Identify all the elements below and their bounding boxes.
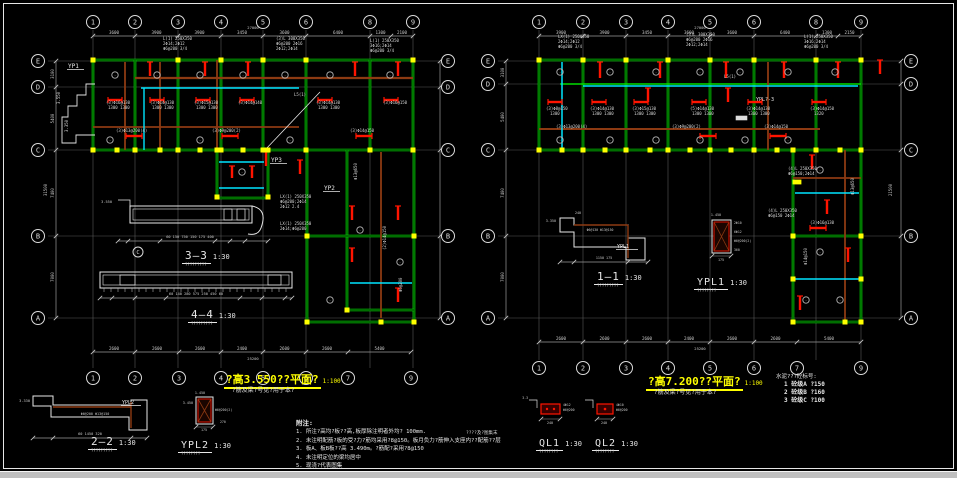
notch xyxy=(120,275,135,285)
column-marker xyxy=(411,58,416,63)
column-marker xyxy=(266,148,271,153)
grid-axis-number: 3 xyxy=(624,19,628,27)
callout-text: Φ14@150 xyxy=(803,248,808,265)
grid-axis-number: 4 xyxy=(219,375,223,383)
rebar-note: 2Φ10 xyxy=(734,221,742,225)
dim-value: 1150 175 xyxy=(596,256,612,260)
section-sub: ????????? xyxy=(182,263,230,267)
element-tag-dot: · xyxy=(839,298,841,302)
grid-axis-number: 9 xyxy=(409,375,413,383)
grid-axis-number: B xyxy=(446,233,450,241)
column-marker xyxy=(560,148,565,153)
dim-value: 7400 xyxy=(500,188,505,198)
column-marker xyxy=(624,148,629,153)
column-marker xyxy=(581,58,586,63)
section-3-3-inner xyxy=(133,209,249,220)
ql1-bar xyxy=(546,408,548,410)
section-3-3-hook xyxy=(248,206,263,234)
column-marker xyxy=(688,148,693,153)
column-marker xyxy=(648,148,653,153)
grid-axis-number: 2 xyxy=(581,365,585,373)
element-tag-dot: · xyxy=(655,70,657,74)
callout-text: 3.350 xyxy=(64,119,69,132)
grid-axis-number: D xyxy=(446,84,450,92)
column-marker xyxy=(215,148,220,153)
callout-text: (3)Φ14@150 xyxy=(350,128,375,133)
level-mark: 3.350 xyxy=(546,219,556,223)
dim-value: 7000 xyxy=(50,272,55,282)
column-marker xyxy=(752,58,757,63)
element-tag-dot: · xyxy=(559,138,561,142)
dim-value: 5400 xyxy=(50,113,55,123)
grid-axis-number: 9 xyxy=(411,19,415,27)
right-plan-group: 1234568912345679EEDDCCBBAA39003900345036… xyxy=(482,16,918,375)
rebar-note: 4Φ12 xyxy=(563,403,571,407)
callout-text: 1300 1300 xyxy=(692,111,714,116)
grid-axis-number: 5 xyxy=(708,19,712,27)
dim-value: 2100 xyxy=(397,30,408,35)
callout-text: Φ13@650 xyxy=(850,178,855,195)
element-tag-dot: · xyxy=(199,138,201,142)
element-tag-dot: · xyxy=(389,73,391,77)
plan-drawing-svg: 1234568912345679EEDDCCBBAA36003900390034… xyxy=(0,0,957,478)
callout-text: Φ6@200 xyxy=(398,277,403,292)
grid-axis-number: C xyxy=(136,250,139,256)
section-sub: ????????? xyxy=(594,284,642,288)
callout-text: 2Φ12;2Φ14 xyxy=(686,42,708,47)
element-tag-dot: · xyxy=(744,138,746,142)
section-scale: 1:30 xyxy=(625,274,642,282)
callout-text: (3)Φ9@200(2) xyxy=(212,128,241,133)
left-plan-title-scale: 1:100 xyxy=(323,378,341,385)
column-marker xyxy=(305,234,310,239)
rebar-note: Φ6@200(2) xyxy=(215,408,232,412)
note-line: 4. 未注明定位的梁均居中 xyxy=(296,454,501,463)
column-marker xyxy=(791,277,796,282)
callout-text: L5(1) xyxy=(724,74,736,79)
cad-drawing-window: 1234568912345679EEDDCCBBAA36003900390034… xyxy=(0,0,957,478)
column-marker xyxy=(176,58,181,63)
dim-value: 60 150 750 150 175 400 xyxy=(166,235,214,239)
level-mark: 3.330 xyxy=(19,399,30,403)
element-tag-dot: · xyxy=(609,70,611,74)
dim-value: 2600 xyxy=(152,346,163,351)
element-tag-dot: · xyxy=(787,138,789,142)
column-marker xyxy=(304,148,309,153)
grid-axis-number: 7 xyxy=(795,365,799,373)
column-marker xyxy=(838,148,843,153)
ql-side-note: ????及?图集末 xyxy=(466,430,498,436)
column-marker xyxy=(814,58,819,63)
section-label-ql1: QL11:30 ???????? xyxy=(536,433,582,454)
dim-value: 3600 xyxy=(279,30,290,35)
dim-overall: 31500 xyxy=(43,183,48,196)
column-marker xyxy=(91,148,96,153)
dim-value: 5400 xyxy=(374,346,385,351)
element-tag-dot: · xyxy=(834,70,836,74)
section-4-4-inner xyxy=(103,275,289,285)
notch xyxy=(224,209,232,220)
element-tag-dot: · xyxy=(156,73,158,77)
callout-text: L5(1) xyxy=(294,92,306,97)
stair-detail xyxy=(62,84,95,143)
dim-value: 6400 xyxy=(780,30,791,35)
section-sub: ????????? xyxy=(88,449,136,453)
grid-axis-number: B xyxy=(909,233,913,241)
column-marker xyxy=(729,148,734,153)
note-line: 3. 板A、板B板??高 3.490m。?筋配?采用?8@150 xyxy=(296,445,501,454)
dim-overall: 21500 xyxy=(888,183,893,196)
section-scale: 1:30 xyxy=(621,440,638,448)
left-plan-subtitle: ?筋及梁?号见?用于本? xyxy=(224,388,341,394)
dim-value: 6400 xyxy=(333,30,344,35)
callout-text: Φ6@200 3/4 xyxy=(804,44,829,49)
rebar-note: 360 xyxy=(734,248,740,252)
callout-text: 2Φ14;Φ6@200 xyxy=(280,226,307,231)
element-tag-dot: · xyxy=(819,168,821,172)
grid-axis-number: 3 xyxy=(177,375,181,383)
dim-value: 2400 xyxy=(237,346,248,351)
grid-axis-number: 2 xyxy=(133,19,137,27)
grid-axis-number: 8 xyxy=(368,19,372,27)
notes-block: 附注: 1. 所注?高均?板??高,板厚除注明者外均? 100mm. 2. 未注… xyxy=(296,418,501,471)
dim-value: 2600 xyxy=(556,336,567,341)
dim-value: 3900 xyxy=(194,30,205,35)
column-marker xyxy=(412,234,417,239)
callout-text: Φ6@200 3/4 xyxy=(370,48,395,53)
section-label-ypl1: YPL11:30 ???????? xyxy=(694,272,747,293)
element-tag-dot: · xyxy=(289,138,291,142)
grid-axis-number: 1 xyxy=(537,19,541,27)
column-marker xyxy=(241,148,246,153)
grid-axis-number: 6 xyxy=(752,19,756,27)
rebar-note: 6Φ12 xyxy=(734,230,742,234)
element-tag-dot: · xyxy=(329,73,331,77)
plan-label: YP3 xyxy=(271,157,282,164)
section-3-3-outline xyxy=(130,206,252,223)
left-plan-group: 1234568912345679EEDDCCBBAA36003900390034… xyxy=(32,16,455,385)
dim-value: 2400 xyxy=(684,336,695,341)
dim-value: 2600 xyxy=(642,336,653,341)
dim-value: 175 xyxy=(718,258,724,262)
column-marker xyxy=(305,320,310,325)
dim-overall: 25200 xyxy=(694,346,706,351)
rebar-note: Φ6@200 xyxy=(563,408,575,412)
dim-value: 3100 xyxy=(500,67,505,77)
section-scale: 1:30 xyxy=(119,439,136,447)
element-tag-dot: · xyxy=(609,138,611,142)
element-tag-dot: · xyxy=(699,70,701,74)
dim-value: 3900 xyxy=(151,30,162,35)
callout-text: Φ6@150 2Φ14 xyxy=(768,213,795,218)
grid-axis-number: E xyxy=(486,58,490,66)
callout-text: (3)Φ14@150 xyxy=(764,124,789,129)
dim-value: 2600 xyxy=(727,336,738,341)
element-tag-dot: · xyxy=(329,298,331,302)
notch xyxy=(237,209,245,220)
dim-value: 270 xyxy=(220,420,226,424)
dim-overall: 27000 xyxy=(694,25,706,30)
grid-axis-number: B xyxy=(486,233,490,241)
rebar-note: Φ6@130 Φ13@150 xyxy=(587,228,614,232)
plan-label: YP1 xyxy=(68,63,79,70)
grid-axis-number: C xyxy=(486,147,490,155)
grid-axis-number: E xyxy=(36,58,40,66)
column-marker xyxy=(537,148,542,153)
callout-text: 2Φ12;2Φ14 xyxy=(276,46,298,51)
section-label-2-2: 2—21:30 ????????? xyxy=(88,432,136,453)
left-plan-title: ?高3.550??平面?1:100 ?筋及梁?号见?用于本? xyxy=(224,370,341,394)
grid-axis-number: 6 xyxy=(304,19,308,27)
column-marker xyxy=(215,195,220,200)
dim-value: 1.450 xyxy=(711,213,721,217)
grid-axis-number: 4 xyxy=(666,19,670,27)
element-tag-dot: · xyxy=(819,250,821,254)
column-marker xyxy=(261,58,266,63)
rebar-note: Φ6@200 Φ13@150 xyxy=(81,412,110,416)
column-marker xyxy=(198,148,203,153)
grid-axis-number: D xyxy=(36,84,40,92)
ql1-body xyxy=(541,404,560,414)
callout-text: (2)Φ14@150 xyxy=(382,225,387,250)
grid-axis-number: A xyxy=(36,315,41,323)
element-tag-dot: · xyxy=(359,228,361,232)
grid-axis-number: 1 xyxy=(91,19,95,27)
callout-text: 1300 1300 xyxy=(592,111,614,116)
column-marker xyxy=(115,148,120,153)
dim-value: 3450 xyxy=(642,30,653,35)
section-sub: ????????? xyxy=(188,322,236,326)
column-marker xyxy=(859,277,864,282)
grid-axis-number: C xyxy=(36,147,40,155)
note-line: 2. 未注明配筋?板的受?力?筋均采用?8@150。板月负力?筋伸入支座内??配… xyxy=(296,437,501,446)
dim-value: 240 xyxy=(575,211,581,215)
inner-label: YPL1 xyxy=(617,244,629,250)
column-marker xyxy=(791,320,796,325)
grid-axis-number: A xyxy=(486,315,491,323)
column-marker xyxy=(775,148,780,153)
dim-value: 2600 xyxy=(599,336,610,341)
element-tag-dot: · xyxy=(114,73,116,77)
level-mark: 3.550 xyxy=(101,200,112,204)
right-plan-title: ?高7.200??平面?1:100 ?筋及梁?号见?用于本? xyxy=(646,372,763,396)
grid-axis-number: 3 xyxy=(624,365,628,373)
column-marker xyxy=(537,58,542,63)
element-tag-dot: · xyxy=(739,70,741,74)
element-tag-dot: · xyxy=(559,70,561,74)
right-plan-subtitle: ?筋及梁?号见?用于本? xyxy=(646,390,763,396)
ql2-step xyxy=(585,400,593,408)
ql2-bar xyxy=(604,408,607,411)
section-scale: 1:30 xyxy=(730,279,747,287)
callout-text: (3)Φ9@200(2) xyxy=(672,124,701,129)
element-tag-dot: · xyxy=(109,138,111,142)
grid-axis-number: 1 xyxy=(537,365,541,373)
grid-axis-number: D xyxy=(909,81,913,89)
inner-label: YPL2 xyxy=(122,400,134,406)
level-mark: 3.450 xyxy=(183,401,193,405)
grid-axis-number: A xyxy=(446,315,451,323)
dim-value: 2600 xyxy=(322,346,333,351)
dim-value: 2600 xyxy=(279,346,290,351)
section-label-4-4: 4—41:30 ????????? xyxy=(188,305,236,326)
callout-text: 1300 1300 xyxy=(152,105,174,110)
dim-value: 7400 xyxy=(50,188,55,198)
section-scale: 1:30 xyxy=(565,440,582,448)
dim-overall: 25200 xyxy=(247,356,259,361)
column-marker xyxy=(843,320,848,325)
section-scale: 1:30 xyxy=(214,442,231,450)
grid-axis-number: D xyxy=(486,81,490,89)
element-tag-dot: · xyxy=(242,73,244,77)
section-label-ypl2: YPL21:30 ???????? xyxy=(178,435,231,456)
legend-line: 3 砼级C ?100 xyxy=(776,397,825,405)
dim-value: 3100 xyxy=(50,69,55,79)
column-marker xyxy=(368,148,373,153)
column-marker xyxy=(91,58,96,63)
dim-value: 7000 xyxy=(500,272,505,282)
callout-text: 1300 1300 xyxy=(196,105,218,110)
column-marker xyxy=(304,58,309,63)
callout-text: Φ13@650 xyxy=(353,163,358,180)
callout-text: 3.550 xyxy=(56,91,61,104)
grid-axis-number: 4 xyxy=(219,19,223,27)
column-marker xyxy=(708,58,713,63)
column-marker xyxy=(859,234,864,239)
column-marker xyxy=(624,58,629,63)
element-tag-dot: · xyxy=(655,138,657,142)
column-marker xyxy=(345,308,350,313)
column-marker xyxy=(859,58,864,63)
concrete-grade-legend: 水泥???砼标号: 1 砼级A ?150 2 砼级B ?160 3 砼级C ?1… xyxy=(776,374,825,405)
grid-axis-number: 3 xyxy=(176,19,180,27)
dim-value: 3600 xyxy=(109,30,120,35)
column-marker xyxy=(176,148,181,153)
dim-value: 1300 xyxy=(375,30,386,35)
grid-axis-number: 9 xyxy=(859,19,863,27)
dim-value: 2150 xyxy=(844,30,855,35)
callout-text: 1300 1300 xyxy=(748,111,770,116)
section-label-ql2: QL21:30 ???????? xyxy=(592,433,638,454)
column-marker xyxy=(814,148,819,153)
column-marker xyxy=(411,148,416,153)
right-plan-title-scale: 1:100 xyxy=(745,380,763,387)
dim-value: 5400 xyxy=(500,112,505,122)
grid-axis-number: 2 xyxy=(133,375,137,383)
dim-value: 240 xyxy=(601,421,607,425)
section-label-3-3: 3—31:30 ????????? xyxy=(182,246,230,267)
column-marker xyxy=(859,320,864,325)
callout-text: 2Φ12 2.4 xyxy=(280,204,300,209)
plan-label: YP2 xyxy=(324,185,335,192)
element-tag-dot: · xyxy=(199,73,201,77)
grid-axis-number: 2 xyxy=(581,19,585,27)
column-marker xyxy=(752,148,757,153)
callout-text: Φ6@200 3/4 xyxy=(163,46,188,51)
grid-axis-number: 1 xyxy=(91,375,95,383)
dim-value: 2600 xyxy=(195,346,206,351)
tag-box xyxy=(736,116,747,120)
element-tag-dot: · xyxy=(787,70,789,74)
dim-value: 2600 xyxy=(770,336,781,341)
level-mark: 3.3 xyxy=(522,396,528,400)
callout-text: 1320 xyxy=(814,111,824,116)
grid-axis-number: 5 xyxy=(261,19,265,27)
dim-value: 3600 xyxy=(727,30,738,35)
notes-header: 附注: xyxy=(296,418,501,428)
rebar-note: Φ6@200 xyxy=(616,408,628,412)
legend-line: 1 砼级A ?150 xyxy=(776,381,825,389)
callout-text: 1300 1300 xyxy=(634,111,656,116)
grid-axis-number: B xyxy=(36,233,40,241)
step xyxy=(118,200,130,206)
column-marker xyxy=(603,148,608,153)
legend-line: 2 砼级B ?160 xyxy=(776,389,825,397)
column-marker xyxy=(708,148,713,153)
section-scale: 1:30 xyxy=(213,253,230,261)
callout-text: (3)Φ16@150 xyxy=(383,100,408,105)
window-bottom-edge xyxy=(0,471,957,478)
ql1-step xyxy=(529,400,537,408)
column-marker xyxy=(581,148,586,153)
column-marker xyxy=(133,148,138,153)
column-marker xyxy=(266,195,271,200)
element-tag-dot: · xyxy=(699,138,701,142)
note-line: 5. 现浇?代表图集 xyxy=(296,462,501,471)
section-label-1-1: 1—11:30 ????????? xyxy=(594,267,642,288)
ql1-bar xyxy=(553,408,555,410)
callout-text: (3)Φ13@200(4) xyxy=(556,124,587,129)
callout-text: 1300 1300 xyxy=(108,105,130,110)
column-marker xyxy=(666,58,671,63)
grid-axis-number: E xyxy=(909,58,913,66)
element-tag-dot: · xyxy=(805,298,807,302)
grid-axis-number: 8 xyxy=(814,19,818,27)
column-marker xyxy=(791,148,796,153)
grid-axis-number: 7 xyxy=(346,375,350,383)
grid-axis-number: C xyxy=(909,147,913,155)
rebar-note: 4Φ10 xyxy=(616,403,624,407)
grid-axis-number: A xyxy=(909,315,914,323)
callout-text: (3)Φ14@140 xyxy=(238,100,263,105)
dim-value: 3900 xyxy=(599,30,610,35)
section-scale: 1:30 xyxy=(219,312,236,320)
column-marker xyxy=(412,320,417,325)
dim-value: 2600 xyxy=(109,346,120,351)
dim-value: 5400 xyxy=(824,336,835,341)
callout-text: (3)Φ13@200(4) xyxy=(116,128,147,133)
callout-text: 1300 xyxy=(550,111,560,116)
column-marker xyxy=(791,234,796,239)
callout-text: 1300 1300 xyxy=(318,105,340,110)
callout-text: Φ6@150;2Φ14 xyxy=(788,171,815,176)
column-marker xyxy=(219,58,224,63)
column-marker xyxy=(261,148,266,153)
column-marker xyxy=(793,180,801,184)
column-marker xyxy=(666,148,671,153)
callout-text: Φ6@200 3/4 xyxy=(558,44,583,49)
dim-value: 60 140 280 575 250 450 60 xyxy=(169,292,223,296)
column-marker xyxy=(379,320,384,325)
dim-value: 3450 xyxy=(237,30,248,35)
dim-value: 175 xyxy=(201,428,207,432)
column-marker xyxy=(158,148,163,153)
dim-value: 240 xyxy=(547,421,553,425)
plan-label: YPL?-3 xyxy=(756,97,774,103)
element-tag-dot: · xyxy=(284,73,286,77)
dim-value: 1.450 xyxy=(195,391,205,395)
element-tag-dot: · xyxy=(241,170,243,174)
